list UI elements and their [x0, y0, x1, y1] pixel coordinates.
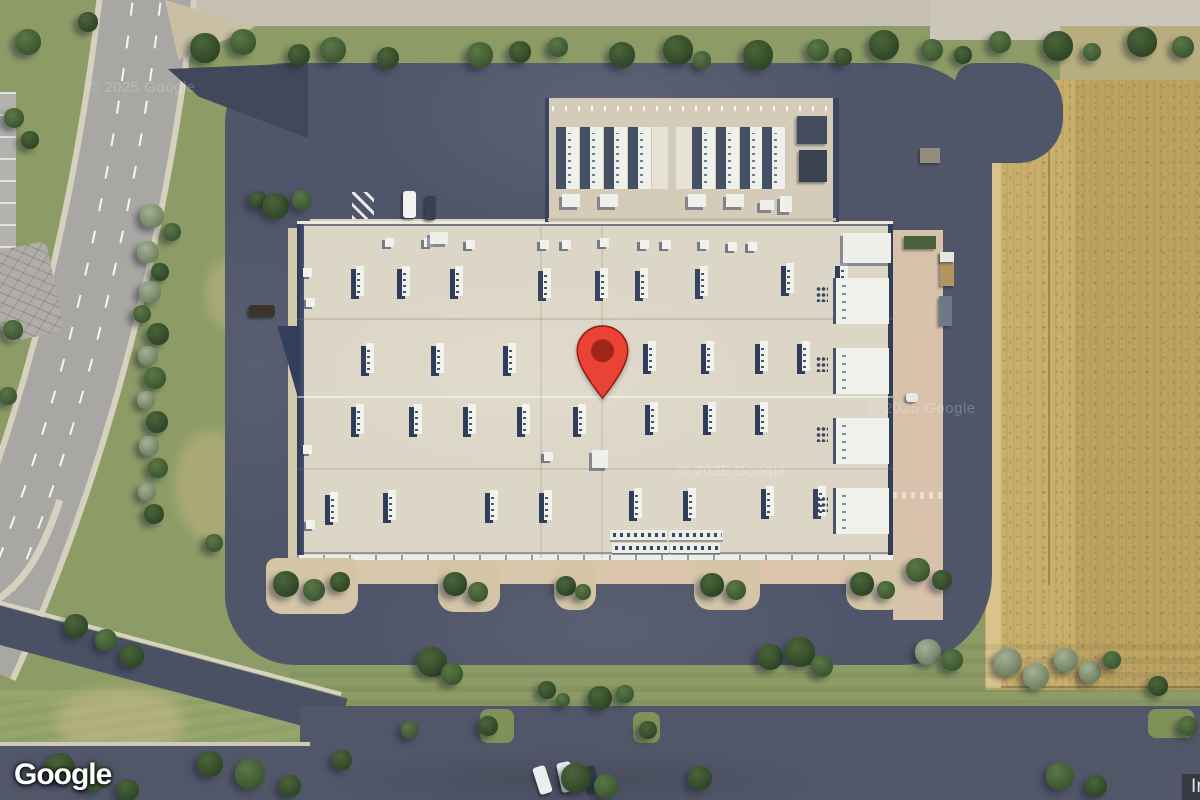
parking-stall-lines	[762, 583, 846, 616]
parked-car	[403, 191, 416, 218]
tree	[989, 31, 1011, 53]
tree	[273, 571, 299, 597]
generator-small-unit	[562, 194, 580, 207]
cooling-bay	[833, 488, 889, 534]
roof-vent	[544, 452, 553, 461]
yard-equipment	[920, 148, 940, 163]
yard-equipment	[797, 116, 827, 144]
generator-small-unit	[760, 200, 774, 210]
tree	[548, 37, 568, 57]
tree	[197, 751, 223, 777]
google-watermark: © 2025 Google	[678, 463, 786, 480]
field-dark-half	[1075, 80, 1200, 690]
generator-bay	[614, 127, 627, 189]
tree	[139, 436, 159, 456]
parking-stall-lines	[512, 711, 635, 742]
generator-yard-west-wall	[545, 98, 549, 222]
tree	[190, 33, 220, 63]
generator-bay	[772, 127, 785, 189]
tree	[330, 572, 350, 592]
tree	[941, 649, 963, 671]
tree	[1172, 36, 1194, 58]
tree	[807, 39, 829, 61]
tree	[3, 320, 23, 340]
attribution-text: Imagery ©2025 Airbus, Maxar Technologies	[1191, 774, 1200, 800]
tree	[1023, 663, 1049, 689]
parking-stall-lines	[500, 583, 556, 616]
tree	[561, 763, 591, 793]
tree	[877, 581, 895, 599]
cooling-bay	[833, 278, 889, 324]
roof-unit	[843, 233, 891, 263]
google-watermark: © 2025 Google	[868, 400, 976, 417]
parking-stall-lines	[360, 583, 440, 616]
tree	[138, 346, 158, 366]
tree	[303, 579, 325, 601]
tree	[230, 29, 256, 55]
tree	[556, 693, 570, 707]
attribution-bar: Imagery ©2025 Airbus, Maxar Technologies	[1182, 774, 1200, 800]
roof-vent	[562, 240, 571, 249]
roof-vent	[303, 445, 312, 454]
roof-vent	[700, 240, 709, 249]
generator-small-unit	[600, 194, 618, 207]
tree	[137, 391, 155, 409]
google-logo[interactable]: Google	[14, 758, 111, 792]
tree	[688, 766, 712, 790]
roof-seam	[297, 318, 893, 320]
generator-bay-shadow	[556, 127, 566, 189]
tree	[1148, 676, 1168, 696]
tree	[609, 42, 635, 68]
generator-small-unit	[780, 196, 792, 212]
tree	[205, 534, 223, 552]
roof-vent	[748, 242, 757, 251]
yard-equipment	[904, 236, 936, 249]
tree	[757, 644, 783, 670]
tree	[700, 573, 724, 597]
building-north-shadow	[297, 224, 893, 226]
roof-vent	[600, 238, 609, 247]
tree	[1046, 762, 1074, 790]
tree	[21, 131, 39, 149]
parking-stall-lines	[597, 583, 694, 616]
generator-bay-shadow	[762, 127, 772, 189]
tree	[120, 644, 144, 668]
generator-bay	[702, 127, 715, 189]
tree	[663, 35, 693, 65]
cooling-bay-dots	[816, 426, 828, 442]
tree	[834, 48, 852, 66]
generator-bay-empty	[676, 127, 692, 189]
cooling-bay	[833, 418, 889, 464]
generator-yard-south-edge	[548, 218, 836, 221]
tree	[78, 12, 98, 32]
roof-vent	[540, 240, 549, 249]
tree	[616, 685, 634, 703]
generator-bay-shadow	[580, 127, 590, 189]
cooling-tower-bar	[610, 530, 667, 540]
parked-car	[249, 305, 275, 317]
tree	[921, 39, 943, 61]
generator-yard-fence	[552, 106, 832, 111]
tree	[556, 576, 576, 596]
tree	[441, 663, 463, 685]
generator-bay	[638, 127, 651, 189]
generator-bay-empty	[652, 127, 668, 189]
tree	[639, 721, 657, 739]
roof-vent	[662, 240, 671, 249]
tree	[932, 570, 952, 590]
tree	[279, 775, 301, 797]
tree	[64, 614, 88, 638]
roof-unit	[430, 232, 448, 244]
tree	[1054, 648, 1078, 672]
roof-vent	[306, 520, 315, 529]
tree	[443, 572, 467, 596]
tree	[726, 580, 746, 600]
crosswalk-east	[893, 492, 943, 499]
cooling-bay-dots	[816, 286, 828, 302]
tree	[575, 584, 591, 600]
building-south-wall	[297, 555, 893, 560]
tree	[1079, 661, 1101, 683]
generator-bay	[590, 127, 603, 189]
tree	[332, 750, 352, 770]
gravel-strip-south	[300, 558, 895, 584]
red-map-pin[interactable]	[573, 324, 632, 400]
tree	[163, 223, 181, 241]
tree	[478, 716, 498, 736]
tree	[1103, 651, 1121, 669]
tree	[144, 367, 166, 389]
tree	[137, 241, 159, 263]
parked-car	[425, 196, 436, 220]
parking-stall-lines	[313, 711, 480, 742]
roof-seam	[540, 224, 542, 558]
tree	[147, 323, 169, 345]
tree	[1083, 43, 1101, 61]
tree	[0, 387, 17, 405]
tree	[288, 44, 310, 66]
building-south-shadow	[297, 552, 893, 554]
tree	[915, 639, 941, 665]
tree	[148, 458, 168, 478]
tree	[320, 37, 346, 63]
roof-unit	[592, 450, 608, 468]
cooling-bay-dots	[816, 496, 828, 512]
tree	[1178, 716, 1198, 736]
roof-vent	[303, 268, 312, 277]
tree	[1127, 27, 1157, 57]
generator-bay	[566, 127, 579, 189]
cooling-tower-bar	[669, 530, 723, 540]
tree	[144, 504, 164, 524]
tree	[95, 629, 117, 651]
yard-equipment	[940, 252, 954, 262]
tree	[467, 42, 493, 68]
tree	[151, 263, 169, 281]
generator-bay-shadow	[692, 127, 702, 189]
parking-stall-lines	[660, 711, 1148, 742]
generator-bay	[726, 127, 739, 189]
tree	[146, 411, 168, 433]
tree	[15, 29, 41, 55]
tree	[509, 41, 531, 63]
tree	[133, 305, 151, 323]
tree	[117, 779, 139, 800]
generator-bay-shadow	[604, 127, 614, 189]
tree	[954, 46, 972, 64]
cooling-tower-bar	[612, 543, 669, 553]
generator-yard-east-wall	[833, 98, 839, 222]
tree	[906, 558, 930, 582]
tree	[811, 655, 833, 677]
sidewalk-bottom	[0, 742, 310, 746]
tree	[693, 51, 711, 69]
tree	[377, 47, 399, 69]
generator-small-unit	[688, 194, 706, 207]
satellite-map-canvas[interactable]: © 2025 Google© 2025 Google© 2025 Google …	[0, 0, 1200, 800]
roof-vent	[385, 238, 394, 247]
tree	[140, 204, 164, 228]
tree	[401, 721, 419, 739]
cooling-bay	[833, 348, 889, 394]
parking-stall-lines	[243, 212, 293, 578]
tree	[869, 30, 899, 60]
tree	[4, 108, 24, 128]
tree	[743, 40, 773, 70]
tree	[850, 572, 874, 596]
generator-bay-shadow	[740, 127, 750, 189]
ring-road-top-right-curve	[955, 63, 1063, 163]
roof-vent	[306, 298, 315, 307]
cooling-bay-dots	[816, 356, 828, 372]
yard-equipment	[799, 150, 827, 182]
field-track-line	[1048, 85, 1050, 585]
tree	[139, 281, 161, 303]
tree	[138, 483, 156, 501]
google-watermark: © 2025 Google	[88, 79, 196, 96]
roof-vent	[466, 240, 475, 249]
tree	[468, 582, 488, 602]
tree	[994, 648, 1022, 676]
tree	[263, 193, 289, 219]
tree	[538, 681, 556, 699]
roof-vent	[728, 242, 737, 251]
tree	[292, 190, 312, 210]
tree	[1085, 775, 1107, 797]
cooling-tower-bar	[670, 543, 720, 553]
tree	[594, 774, 618, 798]
yard-equipment	[939, 296, 952, 326]
tree	[1043, 31, 1073, 61]
generator-bay-shadow	[716, 127, 726, 189]
tree	[235, 759, 265, 789]
tree	[588, 686, 612, 710]
generator-small-unit	[726, 194, 744, 207]
roof-seam	[297, 468, 893, 470]
roof-vent	[640, 240, 649, 249]
generator-bay-shadow	[628, 127, 638, 189]
